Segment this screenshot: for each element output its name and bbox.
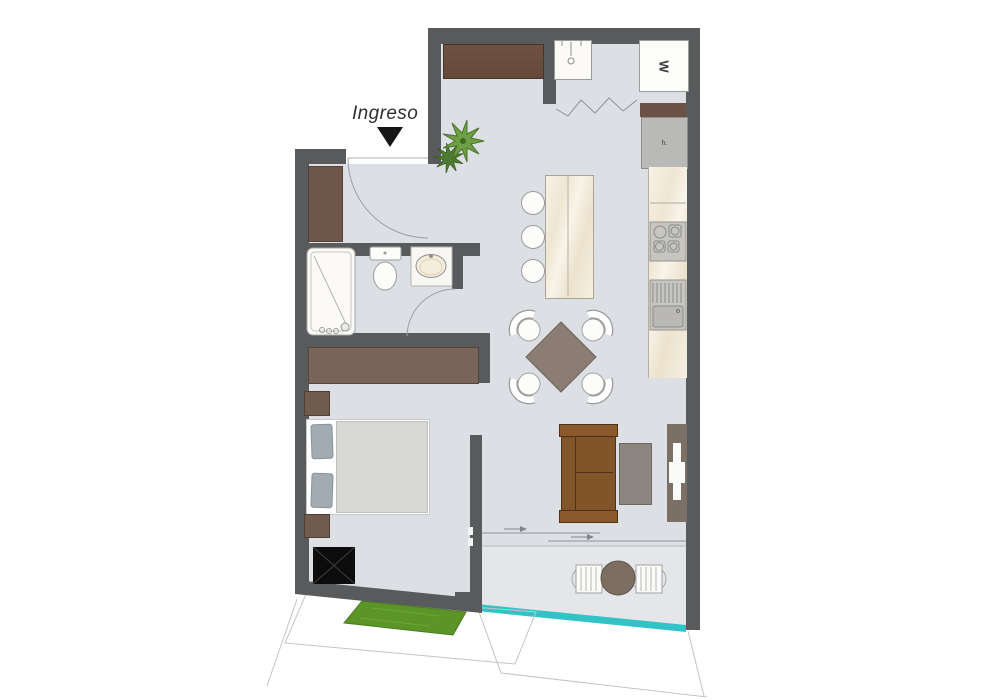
- wall-bottom-slanted: [295, 580, 482, 613]
- balcony-table: [601, 561, 635, 595]
- bathroom-door-swing-arc: [407, 289, 455, 336]
- detail-layer: [0, 0, 1000, 700]
- bed-pillow-bottom: [310, 473, 333, 509]
- bath-sink-basin: [416, 255, 446, 278]
- floor-plan-canvas: W h.: [0, 0, 1000, 700]
- wall-bathroom-right: [452, 256, 463, 289]
- bed-mattress: [336, 421, 428, 513]
- grass-patch: [344, 601, 466, 635]
- bathtub-knob-1: [320, 328, 325, 333]
- wardrobe-bedroom: [308, 347, 479, 384]
- outside-outline-right: [688, 631, 704, 696]
- slide-arrow-icon-2: [571, 534, 594, 540]
- floor-balcony: [477, 546, 686, 626]
- outside-outline-planter: [285, 594, 536, 664]
- bed-pillow-top: [310, 424, 333, 460]
- closet-top: [443, 44, 544, 79]
- wall-partition-foot: [455, 592, 482, 607]
- fridge-cabinet-top: [640, 103, 686, 117]
- partition-handle-bottom: [468, 538, 473, 546]
- grass-texture: [360, 608, 440, 626]
- coffee-table: [619, 443, 652, 505]
- outside-outline-left: [267, 599, 297, 686]
- bathtub-diagonal: [314, 256, 346, 324]
- washer: W: [639, 40, 689, 92]
- nightstand-top: [304, 391, 330, 416]
- partition-handle-top: [468, 527, 473, 535]
- sofa-body: [561, 424, 616, 523]
- sofa-armrest-bottom: [559, 510, 618, 523]
- entrance-label: Ingreso: [352, 103, 418, 125]
- closet-entry: [308, 166, 343, 242]
- nightstand-bottom: [304, 514, 330, 538]
- wall-right: [686, 28, 700, 630]
- sofa-cushion-line: [576, 472, 613, 473]
- wall-entry-vertical: [428, 28, 441, 164]
- laundry-zigzag-line: [556, 98, 637, 116]
- washer-label: W: [657, 60, 672, 72]
- entry-door-swing-arc: [348, 158, 428, 238]
- planter-teal-sliver: [309, 589, 333, 597]
- toilet-bowl: [374, 262, 397, 290]
- sofa-back-line: [575, 436, 576, 510]
- bath-sink-basin-inner: [420, 259, 442, 275]
- dining-chair-sw: [513, 373, 540, 400]
- balcony-railing-edge: [476, 604, 686, 632]
- outside-outline-lower: [478, 609, 707, 697]
- balcony-chair-left: [572, 565, 606, 593]
- laundry-sink: [554, 40, 592, 80]
- refrigerator-label: h.: [662, 140, 668, 147]
- bathtub: [307, 248, 355, 335]
- wall-bathroom-top: [308, 243, 480, 256]
- dining-chair-ne: [582, 314, 609, 341]
- bar-stool-2: [522, 226, 545, 249]
- kitchen-island: [545, 175, 594, 299]
- floor-main: [295, 44, 686, 600]
- floor-layer: [0, 0, 1000, 700]
- refrigerator: h.: [641, 117, 688, 169]
- dining-chair-nw: [513, 314, 540, 341]
- wall-partition-bedroom: [470, 435, 482, 595]
- bathtub-inner: [311, 252, 351, 331]
- wall-bathroom-bottom: [295, 333, 490, 347]
- dining-table: [526, 322, 596, 392]
- slide-arrow-icon-1: [504, 526, 527, 532]
- bar-stool-3: [522, 260, 545, 283]
- dining-chair-se: [582, 373, 609, 400]
- bar-stool-1: [522, 192, 545, 215]
- sofa-armrest-top: [559, 424, 618, 437]
- shaft-crossed-box-icon: [313, 547, 355, 584]
- entrance-arrow-icon: [377, 127, 403, 147]
- bathtub-drain: [341, 323, 349, 331]
- tv-bracket: [669, 462, 685, 483]
- balcony-chair-right: [632, 565, 666, 593]
- kitchen-counter: [648, 167, 687, 378]
